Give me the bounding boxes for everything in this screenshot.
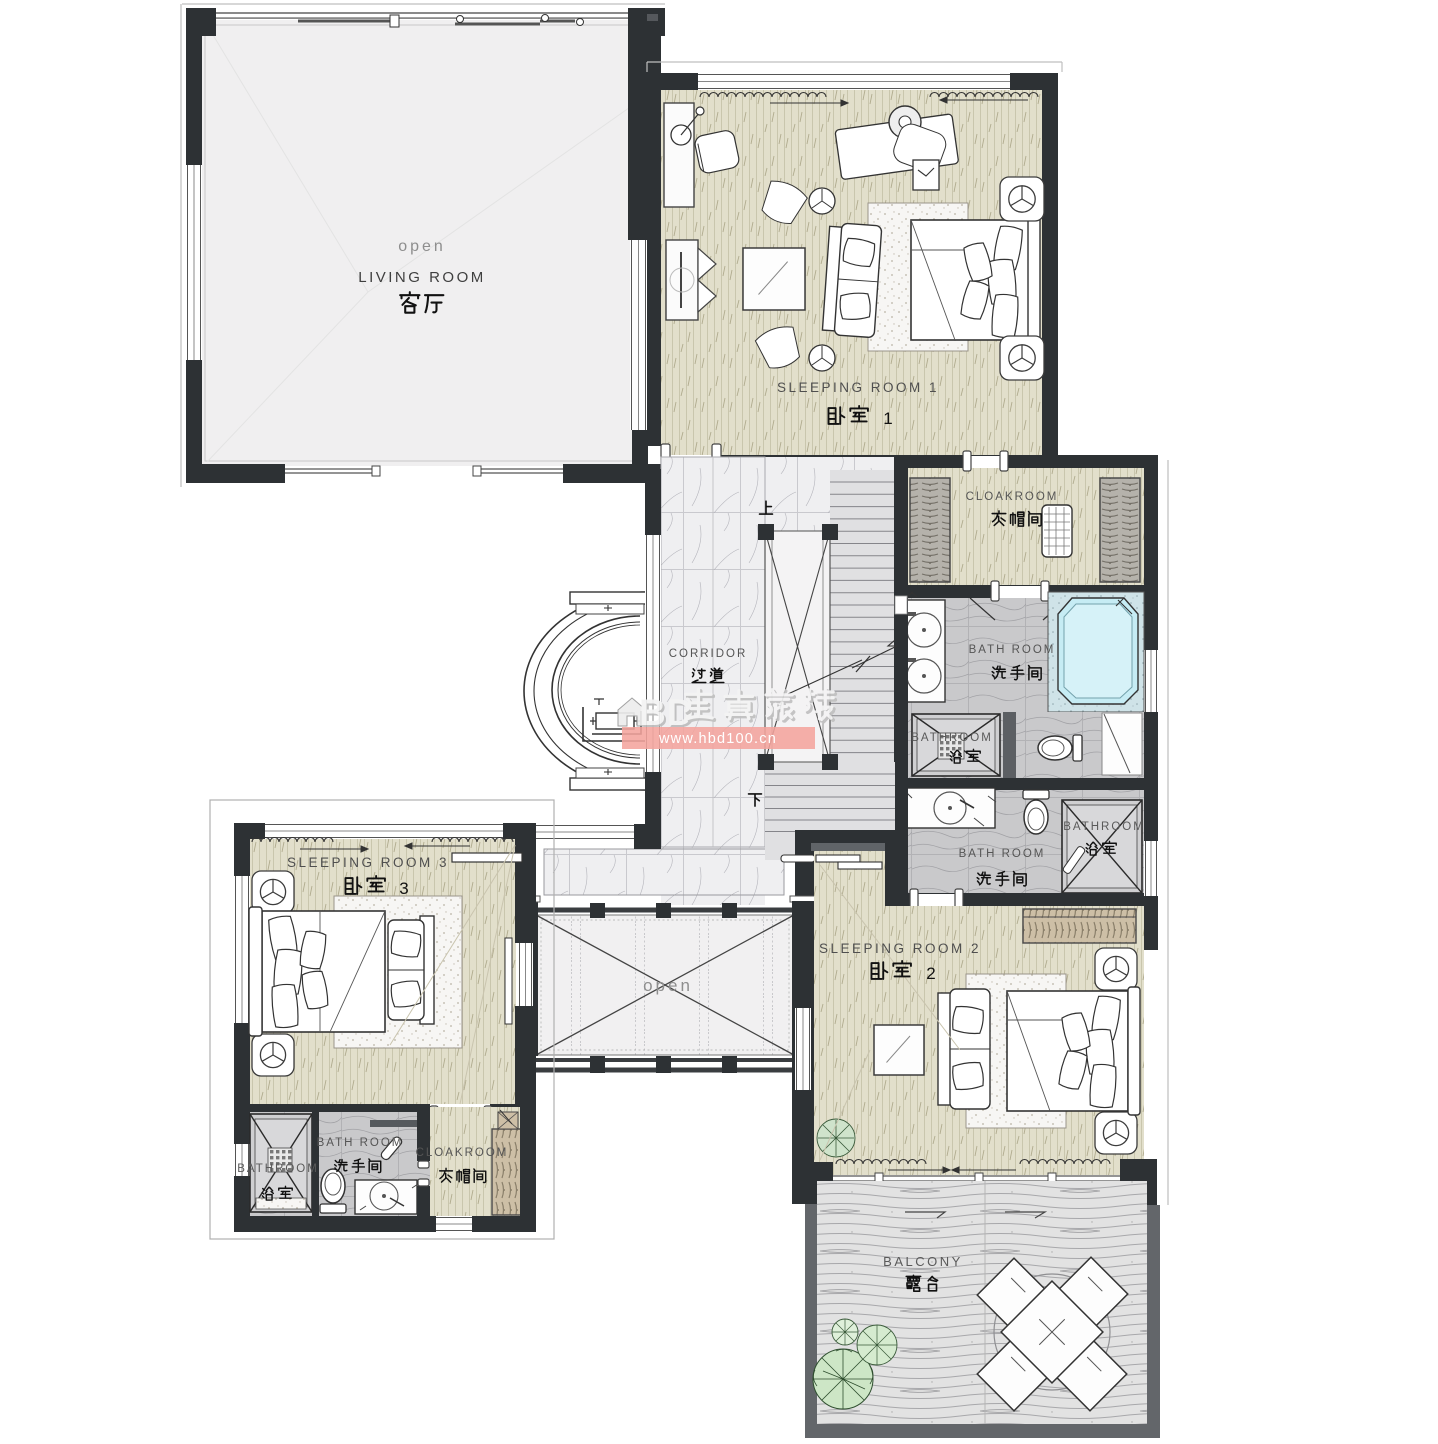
svg-text:www.hbd100.cn: www.hbd100.cn (658, 731, 777, 747)
svg-text:open: open (643, 976, 693, 995)
svg-text:BATHROOM: BATHROOM (1063, 821, 1145, 833)
svg-text:CLOAKROOM: CLOAKROOM (966, 491, 1059, 503)
svg-text:LIVING ROOM: LIVING ROOM (358, 269, 486, 286)
svg-text:1: 1 (883, 409, 892, 428)
svg-text:SLEEPING ROOM 1: SLEEPING ROOM 1 (777, 380, 939, 395)
svg-text:BATH ROOM: BATH ROOM (959, 848, 1046, 860)
svg-text:BATHROOM: BATHROOM (911, 732, 993, 744)
svg-text:SLEEPING ROOM 3: SLEEPING ROOM 3 (287, 855, 449, 870)
svg-text:BATH ROOM: BATH ROOM (317, 1137, 404, 1149)
svg-text:BATHROOM: BATHROOM (237, 1163, 319, 1175)
svg-text:2: 2 (926, 964, 935, 983)
svg-text:CLOAKROOM: CLOAKROOM (416, 1147, 509, 1159)
svg-text:open: open (398, 238, 446, 255)
svg-text:BALCONY: BALCONY (883, 1254, 963, 1269)
svg-text:CORRIDOR: CORRIDOR (669, 648, 748, 660)
svg-text:BATH ROOM: BATH ROOM (969, 644, 1056, 656)
svg-text:3: 3 (399, 879, 408, 898)
svg-text:SLEEPING ROOM 2: SLEEPING ROOM 2 (819, 941, 981, 956)
